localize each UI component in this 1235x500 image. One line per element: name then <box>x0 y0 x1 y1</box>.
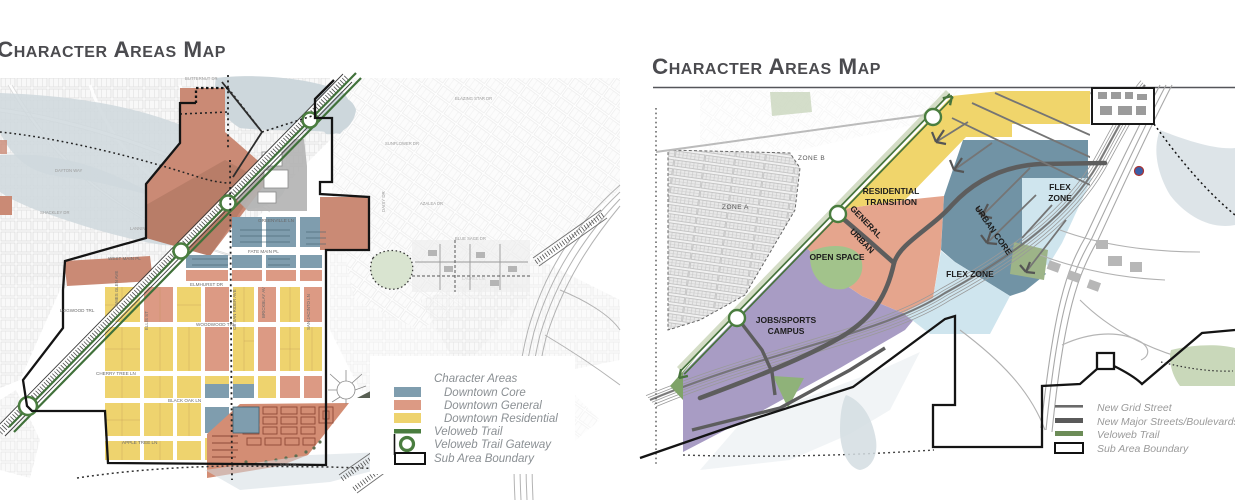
svg-text:WEST MAIN PL: WEST MAIN PL <box>108 256 141 261</box>
svg-text:ELMHURST DR: ELMHURST DR <box>190 282 224 287</box>
svg-text:FATE MAIN PL: FATE MAIN PL <box>248 249 279 254</box>
svg-text:DAISY DR: DAISY DR <box>381 191 386 212</box>
svg-text:Veloweb Trail: Veloweb Trail <box>434 426 503 438</box>
svg-text:BLACK OAK LN: BLACK OAK LN <box>168 398 201 403</box>
svg-text:SUNFLOWER DR: SUNFLOWER DR <box>385 141 419 146</box>
svg-text:Veloweb Trail: Veloweb Trail <box>1097 429 1160 441</box>
svg-text:ZONE A: ZONE A <box>722 204 749 211</box>
svg-text:SHACKLEY DR: SHACKLEY DR <box>40 210 69 215</box>
svg-text:APPLE TREE LN: APPLE TREE LN <box>122 440 157 445</box>
svg-text:JAMES GLEN AVE: JAMES GLEN AVE <box>114 271 119 308</box>
svg-text:SAN JACINTO LN: SAN JACINTO LN <box>306 294 311 330</box>
svg-text:Downtown General: Downtown General <box>444 400 542 412</box>
svg-text:New Grid Street: New Grid Street <box>1097 402 1173 414</box>
svg-text:Downtown Residential: Downtown Residential <box>444 413 558 425</box>
svg-text:GREENVILLE LN: GREENVILLE LN <box>258 218 294 223</box>
svg-text:ZONE B: ZONE B <box>798 155 825 162</box>
svg-text:Sub Area Boundary: Sub Area Boundary <box>434 453 535 465</box>
svg-text:CHERRY TREE LN: CHERRY TREE LN <box>96 371 136 376</box>
svg-text:Sub Area Boundary: Sub Area Boundary <box>1097 443 1189 455</box>
svg-text:FLEX ZONE: FLEX ZONE <box>946 269 994 279</box>
svg-text:Character Areas Map: Character Areas Map <box>0 37 226 62</box>
svg-text:Veloweb Trail Gateway: Veloweb Trail Gateway <box>434 439 552 451</box>
svg-text:OPEN SPACE: OPEN SPACE <box>809 252 864 262</box>
svg-text:WOODWOOD TRL: WOODWOOD TRL <box>196 322 236 327</box>
svg-text:DAYTON WAY: DAYTON WAY <box>55 168 83 173</box>
svg-text:CAMPUS: CAMPUS <box>768 326 805 336</box>
svg-text:LOGWOOD TRL: LOGWOOD TRL <box>60 308 95 313</box>
svg-text:BUTTERNUT DR: BUTTERNUT DR <box>185 76 218 81</box>
svg-text:CB SAN RIDER AVE: CB SAN RIDER AVE <box>232 289 237 330</box>
svg-text:ZONE: ZONE <box>1048 193 1072 203</box>
svg-text:AZALEA DR: AZALEA DR <box>420 201 443 206</box>
svg-text:Character Areas: Character Areas <box>434 373 518 385</box>
svg-text:BLAZING STAR DR: BLAZING STAR DR <box>455 96 492 101</box>
svg-text:BRICKBLAY AV: BRICKBLAY AV <box>261 287 266 318</box>
svg-text:TRANSITION: TRANSITION <box>865 197 917 207</box>
svg-text:RESIDENTIAL: RESIDENTIAL <box>863 186 920 196</box>
svg-text:Downtown Core: Downtown Core <box>444 387 526 399</box>
svg-text:JOBS/SPORTS: JOBS/SPORTS <box>756 315 817 325</box>
svg-text:8TH LN: 8TH LN <box>280 462 296 467</box>
svg-text:New Major Streets/Boulevards: New Major Streets/Boulevards <box>1097 416 1235 428</box>
svg-text:Character Areas Map: Character Areas Map <box>652 54 881 79</box>
svg-text:FLEX: FLEX <box>1049 182 1071 192</box>
svg-text:ELLIS ST: ELLIS ST <box>144 311 149 330</box>
